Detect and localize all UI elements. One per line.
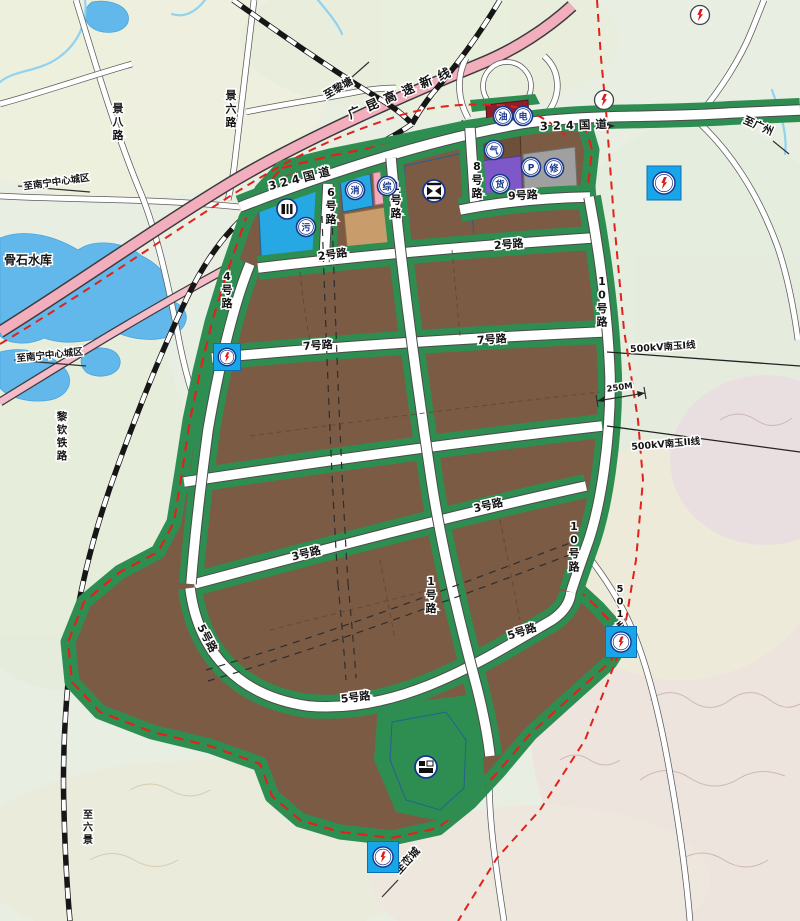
road-label: 9号路 [508, 187, 539, 203]
substation-icon [368, 842, 399, 873]
substation-icon [647, 166, 681, 200]
fuel-station-icon: 油 [494, 107, 513, 126]
planning-map-svg: 324国道324国道2号路2号路7号路7号路3号路3号路5号路5号路5号路9号路… [0, 0, 800, 921]
warehouse-icon [277, 199, 297, 219]
bus-terminal-icon [423, 180, 445, 202]
road-label: 7号路 [302, 337, 334, 353]
road-label: 景六路 [225, 89, 238, 129]
vehicle-repair-icon: 修 [545, 159, 564, 178]
freight-icon: 货 [491, 175, 510, 194]
map-canvas: 324国道324国道2号路2号路7号路7号路3号路3号路5号路5号路5号路9号路… [0, 0, 800, 921]
power-tower-icon [595, 91, 614, 110]
fire-station-icon: 消 [346, 181, 365, 200]
gas-station-icon: 气 [485, 141, 504, 160]
freight-icon-label: 货 [495, 179, 504, 191]
substation-icon [606, 627, 637, 658]
gas-station-icon-label: 气 [488, 145, 498, 157]
road-label: 7号路 [476, 331, 508, 347]
road-label: 2号路 [493, 236, 525, 253]
freight-yard-icon [415, 756, 437, 778]
place-label: 骨石水库 [4, 252, 52, 267]
electric-icon: 电 [514, 107, 533, 126]
electric-icon-label: 电 [518, 111, 527, 123]
place-label: 至六景 [83, 809, 93, 846]
fire-station-icon-label: 消 [350, 185, 359, 197]
power-tower-icon [691, 6, 710, 25]
substation-icon [214, 344, 241, 371]
vehicle-repair-icon-label: 修 [548, 163, 559, 175]
mixed-service-icon-label: 综 [382, 181, 391, 193]
parking-icon-label: P [528, 164, 535, 174]
mixed-service-icon: 综 [378, 177, 397, 196]
sewage-plant-icon: 污 [297, 218, 316, 237]
fuel-station-icon-label: 油 [498, 111, 507, 123]
parking-icon: P [522, 158, 541, 177]
road-label: 324国道 [540, 117, 612, 134]
sewage-plant-icon-label: 污 [301, 222, 310, 234]
road-label: 景八路 [112, 102, 125, 142]
